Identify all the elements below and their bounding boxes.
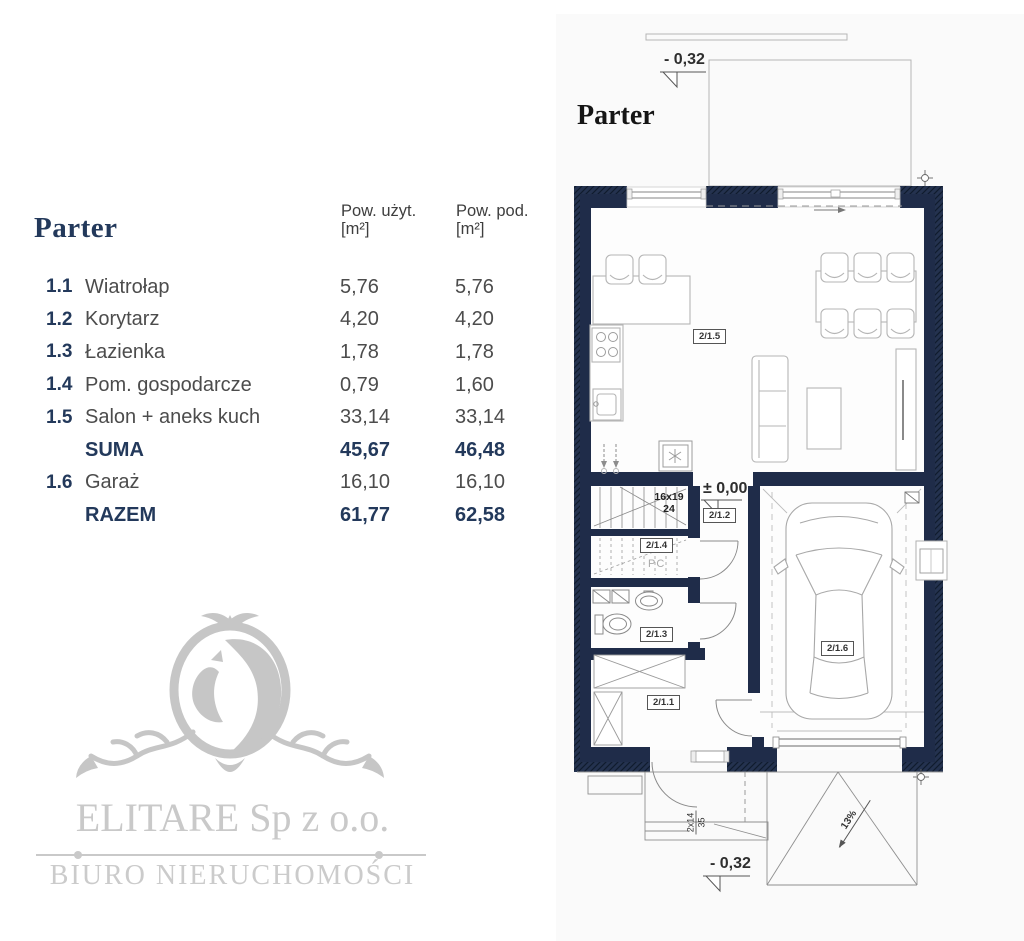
chair bbox=[606, 255, 633, 284]
room-tag-gospodarcze: 2/1.4 bbox=[640, 538, 673, 553]
room-tag-salon: 2/1.5 bbox=[693, 329, 726, 344]
room-tag-korytarz: 2/1.2 bbox=[703, 508, 736, 523]
chair bbox=[639, 255, 666, 284]
chair bbox=[821, 253, 848, 282]
level-marker-zero: ± 0,00 bbox=[703, 480, 747, 498]
level-marker-top: - 0,32 bbox=[664, 51, 705, 69]
kitchen-counter bbox=[590, 325, 623, 421]
boiler-label: PC bbox=[648, 558, 665, 570]
toilet-tank bbox=[595, 615, 603, 634]
garage-fixture bbox=[905, 492, 919, 503]
exterior-steps-label: 2x14 35 bbox=[686, 803, 707, 843]
sofa bbox=[752, 356, 788, 462]
chair bbox=[887, 309, 914, 338]
chair bbox=[854, 253, 881, 282]
page: { "colors": { "wall-color": "#1f2c49", "… bbox=[0, 0, 1024, 941]
level-marker-bottom: - 0,32 bbox=[710, 855, 751, 873]
garage-side-window bbox=[916, 541, 947, 580]
chair bbox=[821, 309, 848, 338]
room-tag-wiatrolap: 2/1.1 bbox=[647, 695, 680, 710]
coffee-table bbox=[807, 388, 841, 449]
room-tag-garaz: 2/1.6 bbox=[821, 641, 854, 656]
entrance-door-panel bbox=[691, 751, 729, 762]
plan-title: Parter bbox=[577, 100, 655, 132]
room-tag-lazienka: 2/1.3 bbox=[640, 627, 673, 642]
car bbox=[774, 503, 904, 719]
chair bbox=[854, 309, 881, 338]
chair bbox=[887, 253, 914, 282]
tv-cabinet bbox=[896, 349, 916, 470]
fridge-icon bbox=[659, 441, 692, 471]
stairs-dimension-label: 16x19 24 bbox=[646, 491, 692, 515]
